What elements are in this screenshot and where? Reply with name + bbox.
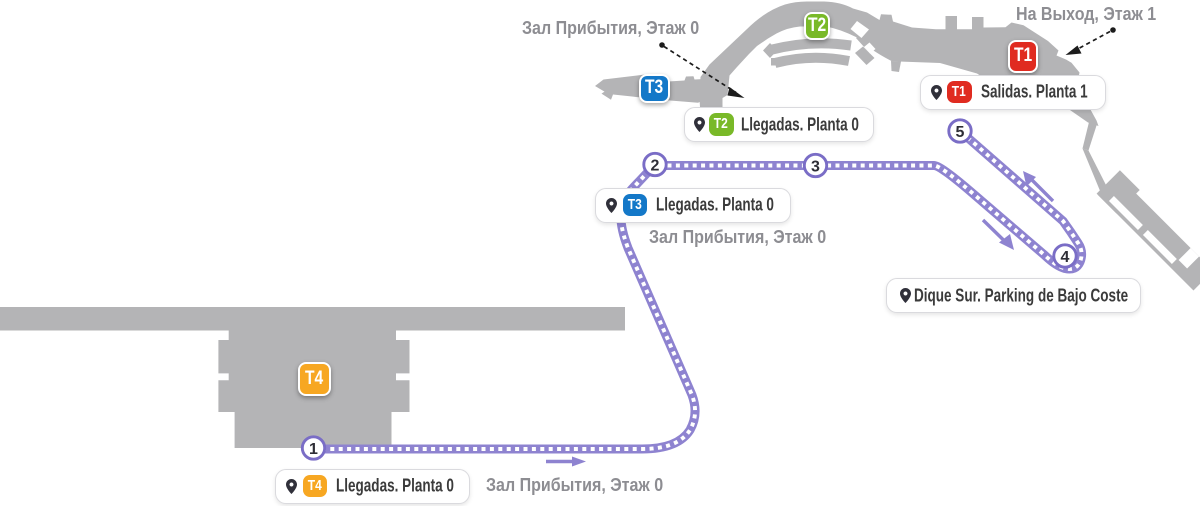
svg-text:2: 2 bbox=[651, 157, 660, 174]
svg-text:3: 3 bbox=[811, 158, 820, 175]
svg-text:5: 5 bbox=[956, 124, 965, 141]
svg-text:1: 1 bbox=[309, 441, 318, 458]
svg-text:4: 4 bbox=[1061, 249, 1070, 266]
